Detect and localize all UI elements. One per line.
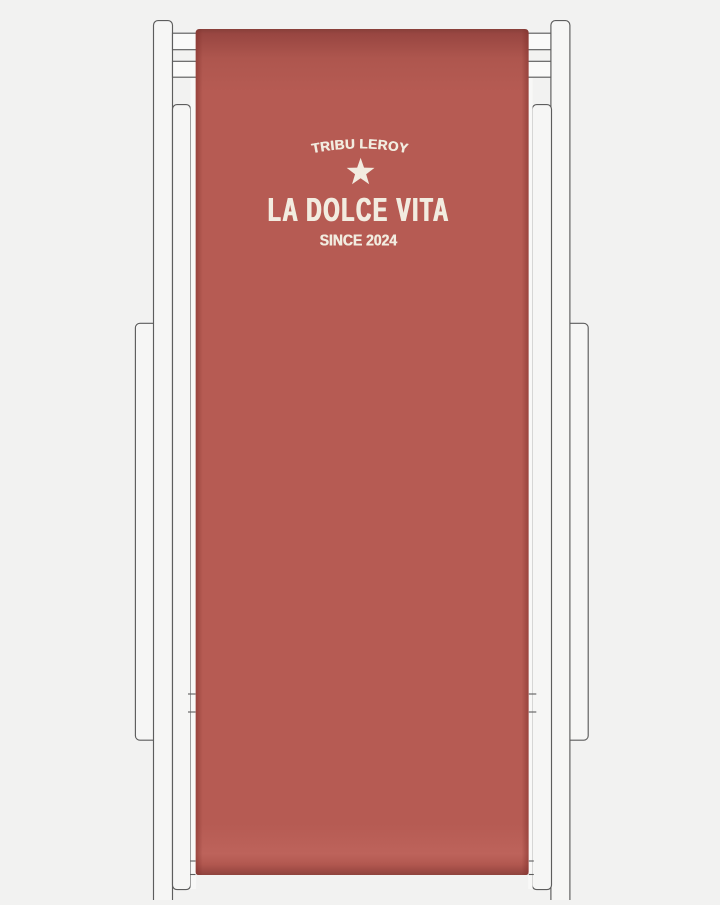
svg-text:LA DOLCE VITA: LA DOLCE VITA [269, 191, 451, 228]
svg-text:SINCE 2024: SINCE 2024 [320, 233, 398, 250]
